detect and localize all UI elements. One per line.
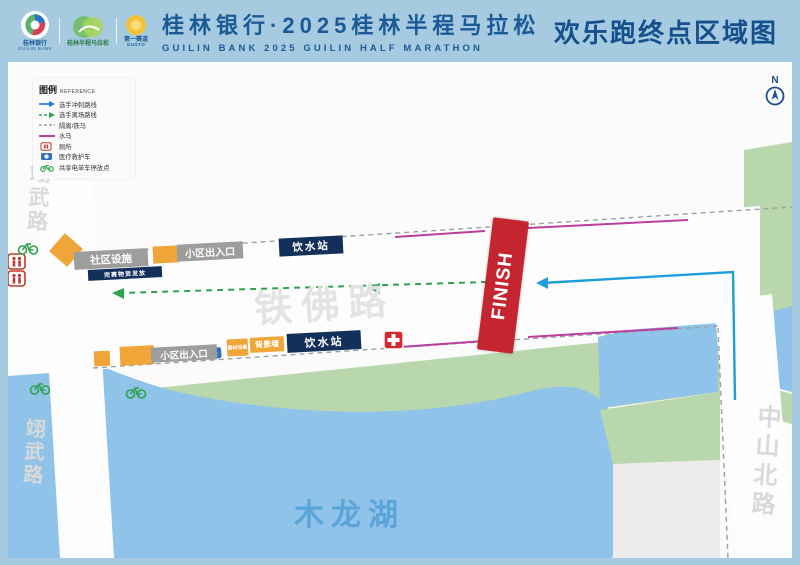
legend-row-toilet: 厕所 [39, 141, 129, 152]
medical-point-icon [384, 331, 403, 349]
marathon-finish-area-map: 桂林银行 GUILIN BANK 桂林半程马拉松 第一赛道 GUSTO 桂林银行… [0, 0, 800, 565]
event-title-cn: 桂林银行·2025桂林半程马拉松 [162, 8, 540, 40]
toilet-icon-1 [8, 254, 25, 269]
bike-icon-1 [19, 244, 38, 254]
backdrop-wall-box: 背景墙 [250, 336, 285, 353]
event-title-en: GUILIN BANK 2025 GUILIN HALF MARATHON [162, 43, 540, 54]
marathon-logo-cn: 桂林半程马拉松 [67, 41, 109, 48]
legend-row-barrier: 隔离/铁马 [39, 120, 129, 131]
exit-route-arrow-icon [39, 110, 55, 119]
guilin-bank-logo-icon [20, 10, 50, 40]
legend-label: 水马 [59, 131, 72, 140]
legend-label: 厕所 [59, 142, 72, 151]
water-station-bottom-box: 饮水站 [287, 330, 362, 353]
legend-row-ebike: 共享电单车停放点 [39, 162, 129, 173]
legend-label: 选手冲刺路线 [59, 100, 97, 109]
ebike-legend-icon [39, 163, 55, 172]
legend-title-en: REFERENCE [60, 89, 95, 95]
event-title-block: 桂林银行·2025桂林半程马拉松 GUILIN BANK 2025 GUILIN… [162, 8, 540, 54]
legend-label: 共享电单车停放点 [59, 163, 109, 172]
barrier-dashed-icon [39, 121, 55, 130]
gusto-logo: 第一赛道 GUSTO [124, 14, 148, 49]
bank-logo-en: GUILIN BANK [18, 47, 52, 52]
north-label: N [763, 76, 787, 86]
area-southeast-gray [613, 460, 720, 558]
sprint-route-arrow-icon [39, 100, 55, 109]
legend-box: 图例 REFERENCE 选手冲刺路线 选手离场路线 隔离/铁马 水马 厕所 医… [33, 78, 135, 179]
legend-row-exit: 选手离场路线 [39, 110, 129, 121]
guilin-bank-logo: 桂林银行 GUILIN BANK [18, 10, 52, 53]
equipment-sign-box: 器材设备 [227, 338, 249, 356]
toilet-legend-icon [39, 142, 55, 151]
water-barrier-icon [39, 131, 55, 140]
legend-row-water-barrier: 水马 [39, 131, 129, 142]
marathon-logo: 桂林半程马拉松 [67, 14, 109, 48]
header-bar: 桂林银行 GUILIN BANK 桂林半程马拉松 第一赛道 GUSTO 桂林银行… [0, 0, 800, 62]
legend-title-cn: 图例 [39, 83, 57, 96]
road-label-tiefo: 铁佛路 [252, 269, 397, 334]
legend-label: 隔离/铁马 [59, 121, 86, 130]
compass-icon [765, 86, 785, 106]
road-label-yiwu-bottom: 翊武路 [16, 417, 49, 487]
sign-yellow-small-1 [94, 351, 111, 367]
gate-top-box: 小区出入口 [177, 241, 244, 261]
lake-label: 木龙湖 [294, 490, 405, 534]
page-title: 欢乐跑终点区域图 [554, 13, 778, 50]
legend-label: 医疗救护车 [59, 152, 90, 161]
logo-divider-2 [116, 18, 117, 44]
finish-label: FINISH [488, 250, 518, 320]
legend-row-ambulance: 医疗救护车 [39, 152, 129, 163]
water-station-top-box: 饮水站 [279, 235, 344, 256]
sign-yellow-small-2 [120, 345, 155, 366]
legend-label: 选手离场路线 [59, 110, 97, 119]
logo-divider [59, 18, 60, 44]
marathon-logo-icon [71, 14, 105, 40]
ambulance-legend-icon [39, 152, 55, 161]
legend-row-sprint: 选手冲刺路线 [39, 99, 129, 110]
gusto-logo-en: GUSTO [127, 43, 145, 48]
sign-orange-top [153, 245, 179, 263]
gusto-logo-icon [125, 14, 147, 36]
toilet-icon-2 [8, 271, 25, 286]
north-indicator: N [763, 76, 787, 111]
